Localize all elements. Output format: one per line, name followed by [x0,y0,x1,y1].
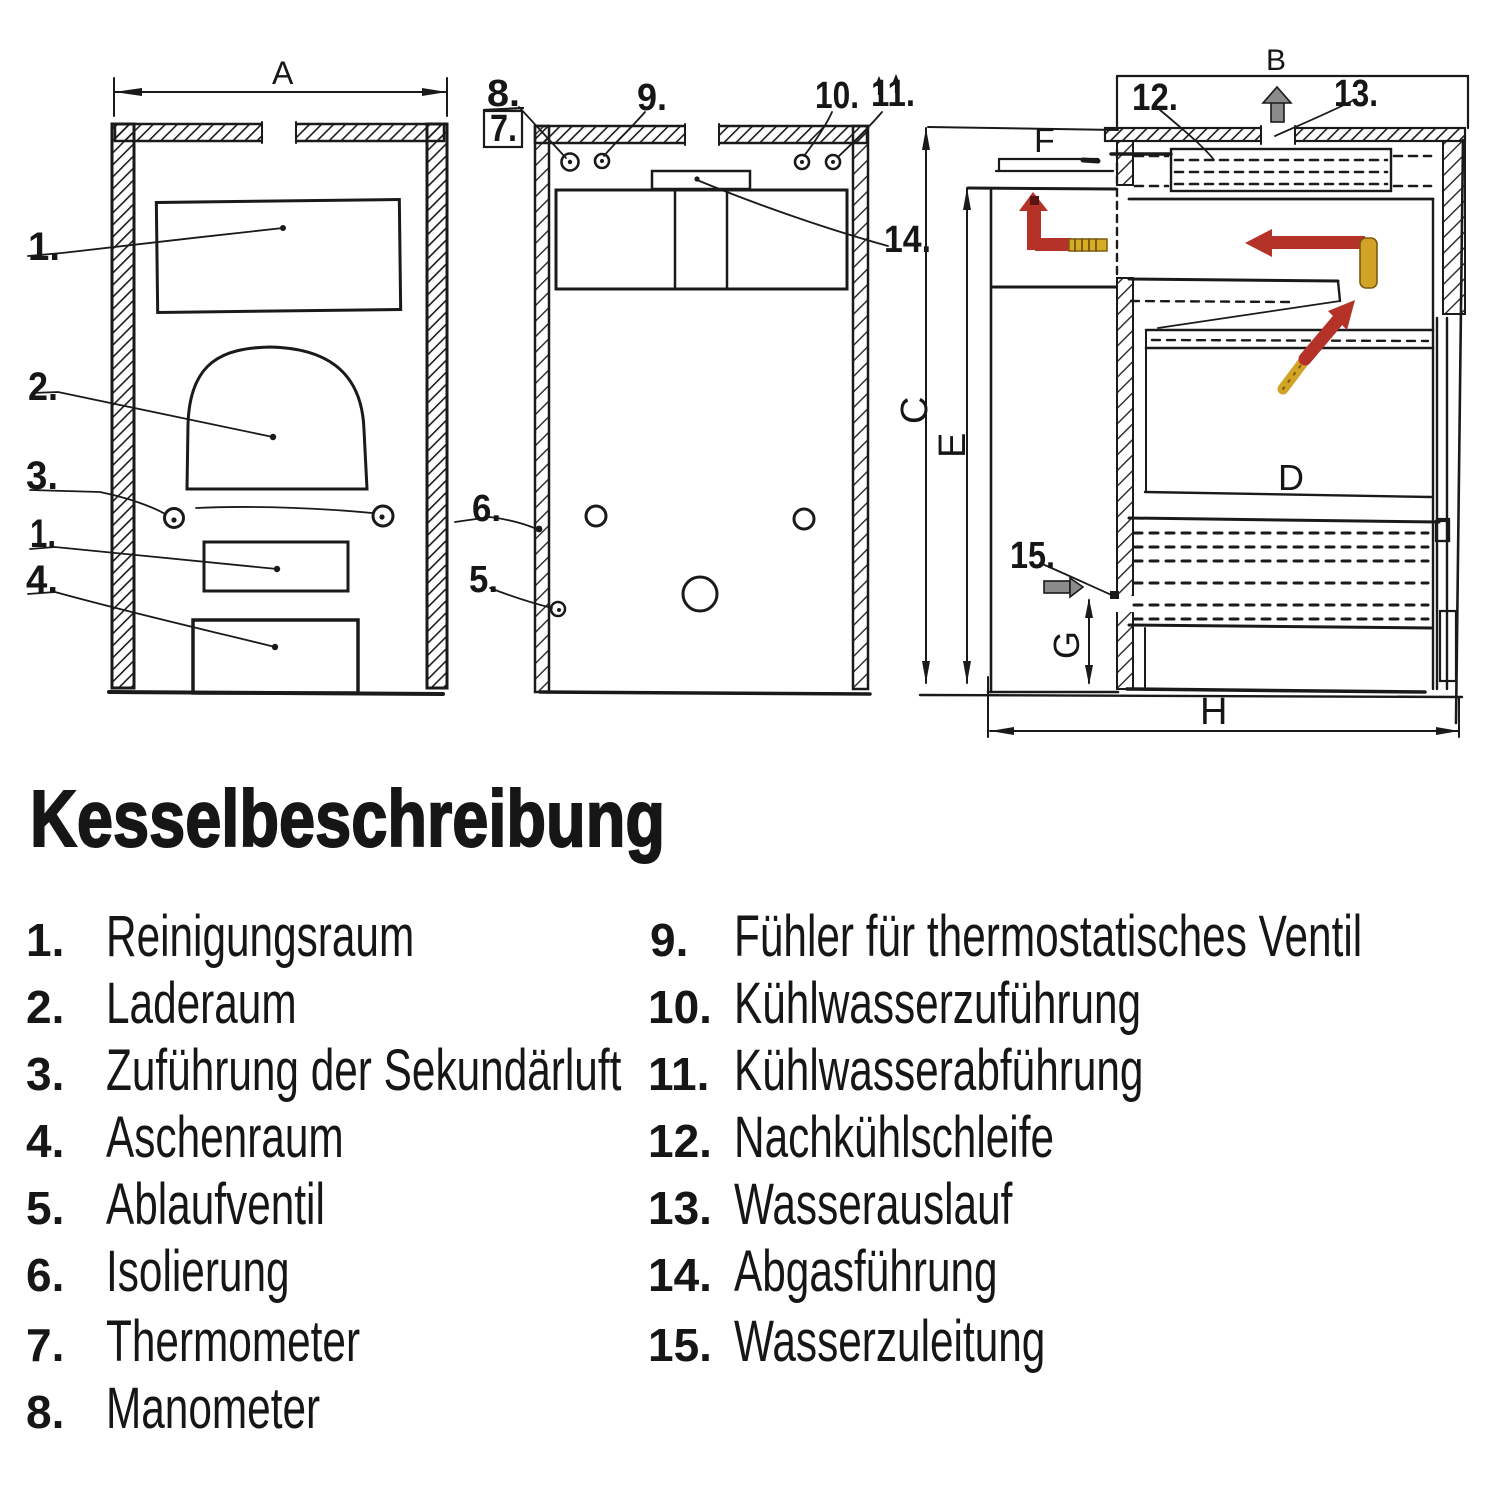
svg-text:F: F [1034,122,1055,160]
svg-text:Nachkühlschleife: Nachkühlschleife [734,1104,1054,1169]
svg-text:Fühler für thermostatisches Ve: Fühler für thermostatisches Ventil [734,903,1362,968]
svg-text:12.: 12. [1132,77,1178,119]
svg-text:6.: 6. [26,1249,64,1301]
svg-text:Laderaum: Laderaum [106,970,297,1035]
svg-text:9.: 9. [650,914,688,966]
svg-text:15.: 15. [1010,535,1055,577]
svg-text:Ablaufventil: Ablaufventil [106,1171,325,1236]
svg-text:B: B [1266,44,1286,77]
svg-text:12.: 12. [648,1115,712,1167]
svg-text:Wasserauslauf: Wasserauslauf [734,1171,1013,1236]
svg-text:Abgasführung: Abgasführung [734,1238,998,1303]
svg-text:6.: 6. [472,488,501,530]
svg-text:7.: 7. [490,108,517,150]
svg-text:Zuführung der Sekundärluft: Zuführung der Sekundärluft [106,1037,621,1102]
svg-text:7.: 7. [26,1319,64,1371]
svg-text:Kesselbeschreibung: Kesselbeschreibung [30,774,665,863]
svg-text:E: E [932,433,974,458]
svg-text:15.: 15. [648,1319,712,1371]
svg-text:Aschenraum: Aschenraum [106,1104,344,1169]
svg-text:5.: 5. [469,559,498,601]
svg-text:C: C [894,397,936,424]
svg-text:1.: 1. [30,512,56,556]
svg-text:2.: 2. [28,365,58,409]
svg-text:13.: 13. [648,1182,712,1234]
svg-text:Kühlwasserabführung: Kühlwasserabführung [734,1037,1143,1102]
svg-text:Kühlwasserzuführung: Kühlwasserzuführung [734,970,1141,1035]
svg-text:4.: 4. [26,1115,64,1167]
svg-text:Wasserzuleitung: Wasserzuleitung [734,1308,1045,1373]
svg-text:11.: 11. [648,1048,709,1100]
svg-text:10.: 10. [815,75,859,117]
svg-text:5.: 5. [26,1182,64,1234]
svg-text:G: G [1046,631,1087,659]
svg-text:11.: 11. [871,73,915,115]
svg-text:Reinigungsraum: Reinigungsraum [106,903,414,968]
svg-text:8.: 8. [26,1386,64,1438]
svg-text:Manometer: Manometer [106,1375,320,1440]
svg-text:13.: 13. [1334,73,1378,115]
svg-text:H: H [1200,691,1227,733]
svg-text:3.: 3. [26,454,58,498]
svg-text:9.: 9. [637,77,667,119]
svg-text:14.: 14. [648,1249,712,1301]
svg-text:1.: 1. [28,225,60,269]
svg-text:A: A [272,55,294,91]
svg-text:D: D [1278,457,1304,498]
svg-text:3.: 3. [26,1048,64,1100]
svg-text:Isolierung: Isolierung [106,1238,290,1303]
svg-text:1.: 1. [26,914,64,966]
svg-text:Thermometer: Thermometer [106,1308,360,1373]
svg-text:14.: 14. [884,219,931,261]
svg-text:4.: 4. [26,558,58,602]
svg-text:10.: 10. [648,981,712,1033]
svg-text:2.: 2. [26,981,64,1033]
